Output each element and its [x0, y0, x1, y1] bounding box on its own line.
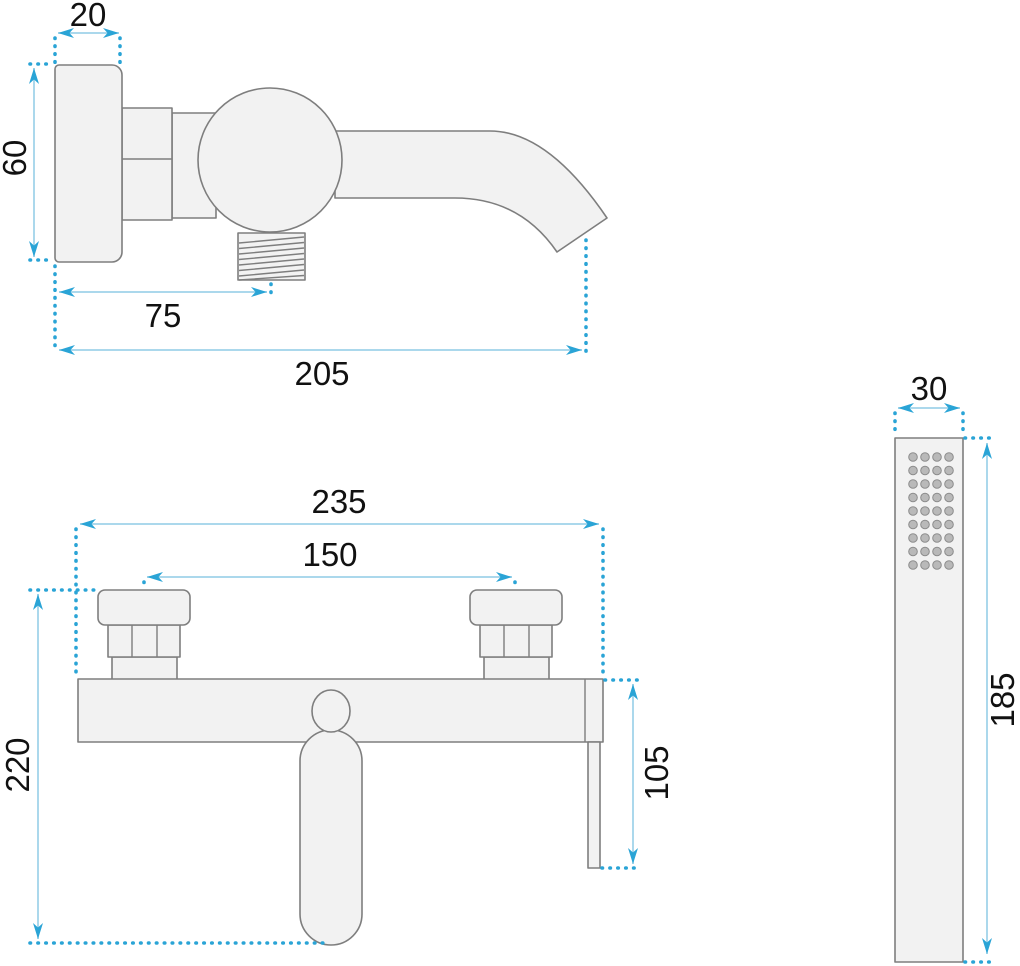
hand-shower-body — [895, 438, 963, 962]
diverter-rod — [588, 742, 600, 868]
nozzle-dot — [921, 480, 930, 489]
dimension-label: 75 — [145, 297, 182, 334]
spout — [335, 131, 607, 252]
dim-shower-length: 185 — [965, 438, 1020, 962]
mixer-handle — [300, 730, 362, 945]
dim-plate-width: 20 — [55, 0, 120, 63]
dimension-label: 205 — [294, 355, 349, 392]
nozzle-dot — [933, 453, 942, 462]
nozzle-dot — [933, 561, 942, 570]
technical-drawing-page: 20 60 75 205 — [0, 0, 1020, 966]
dimension-label: 60 — [0, 140, 33, 177]
technical-drawing-canvas: 20 60 75 205 — [0, 0, 1020, 966]
nozzle-dot — [909, 480, 918, 489]
nozzle-dot — [933, 520, 942, 529]
nozzle-dot — [945, 466, 954, 475]
extension-lines — [895, 413, 963, 435]
wall-connection-left — [98, 590, 190, 691]
nozzle-dot — [909, 453, 918, 462]
dimension-label: 20 — [70, 0, 107, 33]
nozzle-dot — [921, 493, 930, 502]
nozzle-dot — [909, 547, 918, 556]
side-view: 20 60 75 205 — [0, 0, 607, 392]
handle-pivot — [312, 690, 350, 732]
valve-body-circle — [198, 88, 342, 232]
nozzle-dot — [945, 453, 954, 462]
nozzle-dot — [909, 520, 918, 529]
nozzle-dot — [921, 547, 930, 556]
dimension-label: 105 — [638, 745, 675, 800]
extension-lines — [602, 680, 640, 868]
nozzle-dot — [945, 561, 954, 570]
nozzle-dot — [933, 507, 942, 516]
nozzle-dot — [945, 493, 954, 502]
nozzle-dot — [909, 466, 918, 475]
nozzle-dot — [933, 547, 942, 556]
dimension-label: 220 — [0, 737, 36, 792]
connection-escutcheon — [470, 590, 562, 625]
connection-nut — [108, 625, 180, 657]
nozzle-dot — [933, 534, 942, 543]
nozzle-dot — [945, 547, 954, 556]
nozzle-dot — [921, 453, 930, 462]
nozzle-dot — [945, 534, 954, 543]
nozzle-dot — [921, 520, 930, 529]
nozzle-dot — [945, 480, 954, 489]
nozzle-dot — [909, 534, 918, 543]
connection-escutcheon — [98, 590, 190, 625]
dimension-label: 235 — [311, 483, 366, 520]
front-view: 235 150 220 105 — [0, 483, 675, 945]
nozzle-dot — [909, 507, 918, 516]
dimension-label: 185 — [984, 672, 1020, 727]
dim-plate-height: 60 — [0, 64, 52, 260]
extension-lines — [144, 582, 515, 589]
wall-plate — [55, 65, 122, 262]
dim-shower-width: 30 — [895, 370, 963, 435]
nozzle-dot — [909, 493, 918, 502]
mounting-body — [122, 108, 172, 220]
dim-connection-spacing: 150 — [144, 536, 515, 589]
dimension-label: 30 — [911, 370, 948, 407]
nozzle-dot — [945, 520, 954, 529]
nozzle-dot — [933, 480, 942, 489]
dim-spout-reach: 205 — [59, 240, 586, 392]
nozzle-dot — [933, 493, 942, 502]
dimension-label: 150 — [302, 536, 357, 573]
nozzle-dot — [921, 507, 930, 516]
nozzle-dot — [921, 561, 930, 570]
connection-nut — [480, 625, 552, 657]
nozzle-dot — [921, 466, 930, 475]
dim-lever-drop: 105 — [602, 680, 675, 868]
nozzle-dot — [945, 507, 954, 516]
nozzle-dot — [933, 466, 942, 475]
extension-lines — [55, 38, 120, 63]
threaded-outlet — [238, 233, 305, 280]
nozzle-dot — [921, 534, 930, 543]
hand-shower-view: 30 185 — [895, 370, 1020, 962]
wall-connection-right — [470, 590, 562, 691]
nozzle-dot — [909, 561, 918, 570]
